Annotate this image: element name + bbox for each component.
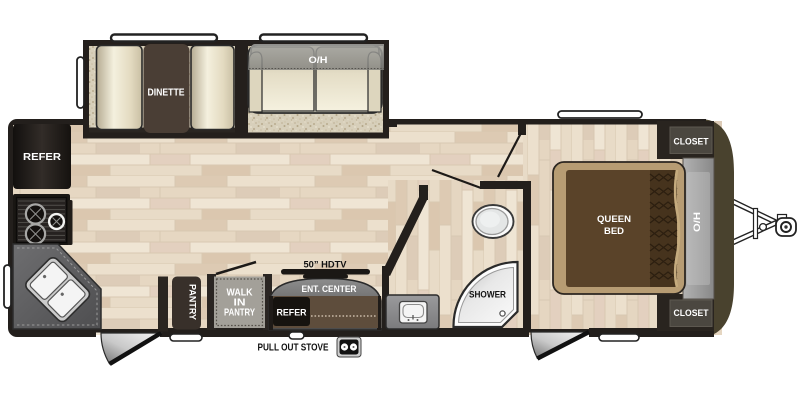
svg-text:PANTRY: PANTRY <box>187 284 198 321</box>
svg-text:O/H: O/H <box>309 55 328 66</box>
svg-text:PANTRY: PANTRY <box>224 308 255 319</box>
svg-text:O/H: O/H <box>692 212 702 232</box>
svg-text:50” HDTV: 50” HDTV <box>304 260 348 271</box>
svg-text:PULL OUT STOVE: PULL OUT STOVE <box>258 343 329 354</box>
svg-text:DINETTE: DINETTE <box>148 88 185 99</box>
svg-text:QUEEN: QUEEN <box>597 214 631 225</box>
svg-text:CLOSET: CLOSET <box>674 308 709 318</box>
svg-text:REFER: REFER <box>23 152 62 163</box>
svg-text:BED: BED <box>604 226 624 237</box>
svg-text:ENT. CENTER: ENT. CENTER <box>302 284 357 295</box>
svg-text:REFER: REFER <box>277 308 307 319</box>
svg-text:CLOSET: CLOSET <box>674 137 709 147</box>
svg-text:SHOWER: SHOWER <box>469 290 506 301</box>
